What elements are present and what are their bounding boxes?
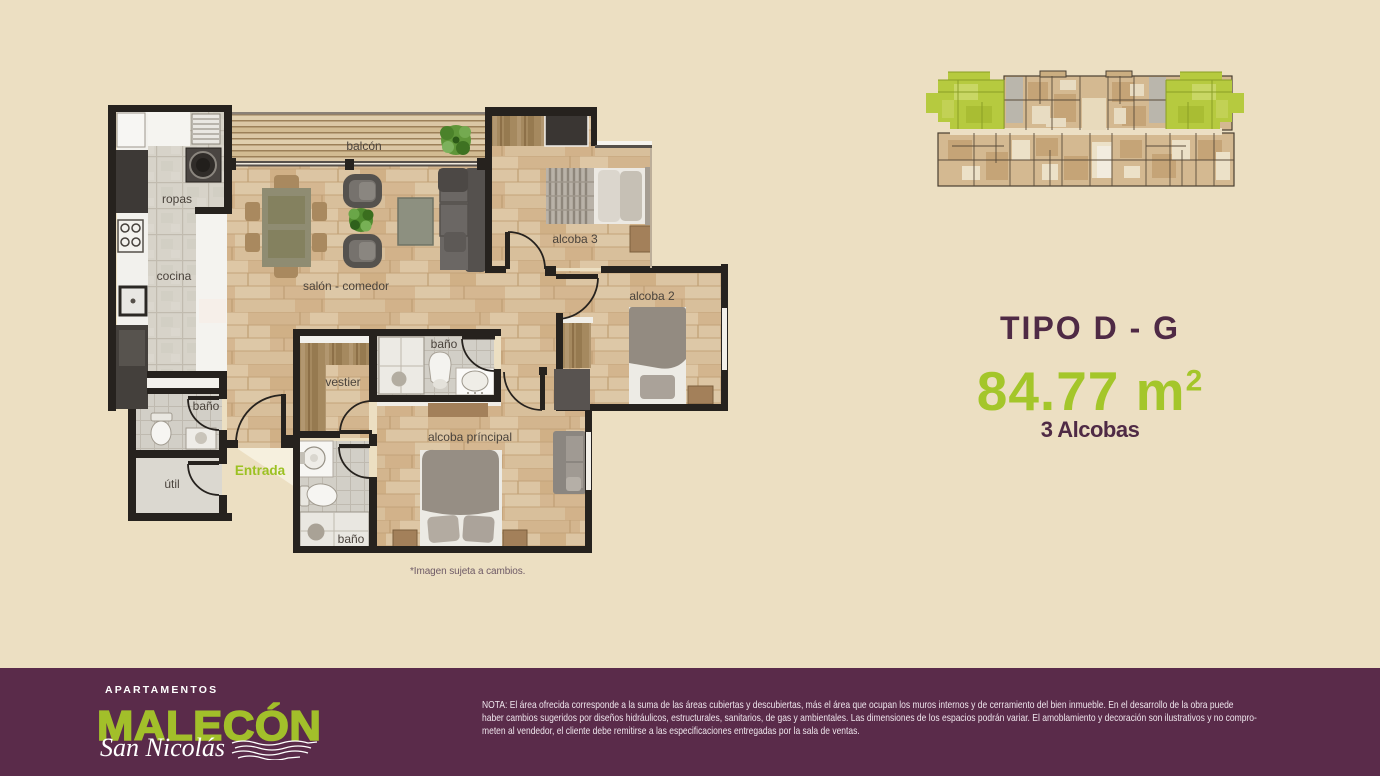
svg-text:vestier: vestier bbox=[325, 375, 360, 389]
svg-text:balcón: balcón bbox=[346, 139, 381, 153]
svg-text:útil: útil bbox=[164, 477, 179, 491]
svg-text:alcoba 2: alcoba 2 bbox=[629, 289, 675, 303]
svg-text:alcoba 3: alcoba 3 bbox=[552, 232, 598, 246]
svg-text:Entrada: Entrada bbox=[235, 463, 286, 478]
svg-text:alcoba príncipal: alcoba príncipal bbox=[428, 430, 512, 444]
svg-text:baño: baño bbox=[193, 399, 220, 413]
svg-text:cocina: cocina bbox=[157, 269, 192, 283]
svg-text:baño: baño bbox=[338, 532, 365, 546]
svg-text:ropas: ropas bbox=[162, 192, 192, 206]
svg-text:baño: baño bbox=[431, 337, 458, 351]
svg-text:salón - comedor: salón - comedor bbox=[303, 279, 389, 293]
